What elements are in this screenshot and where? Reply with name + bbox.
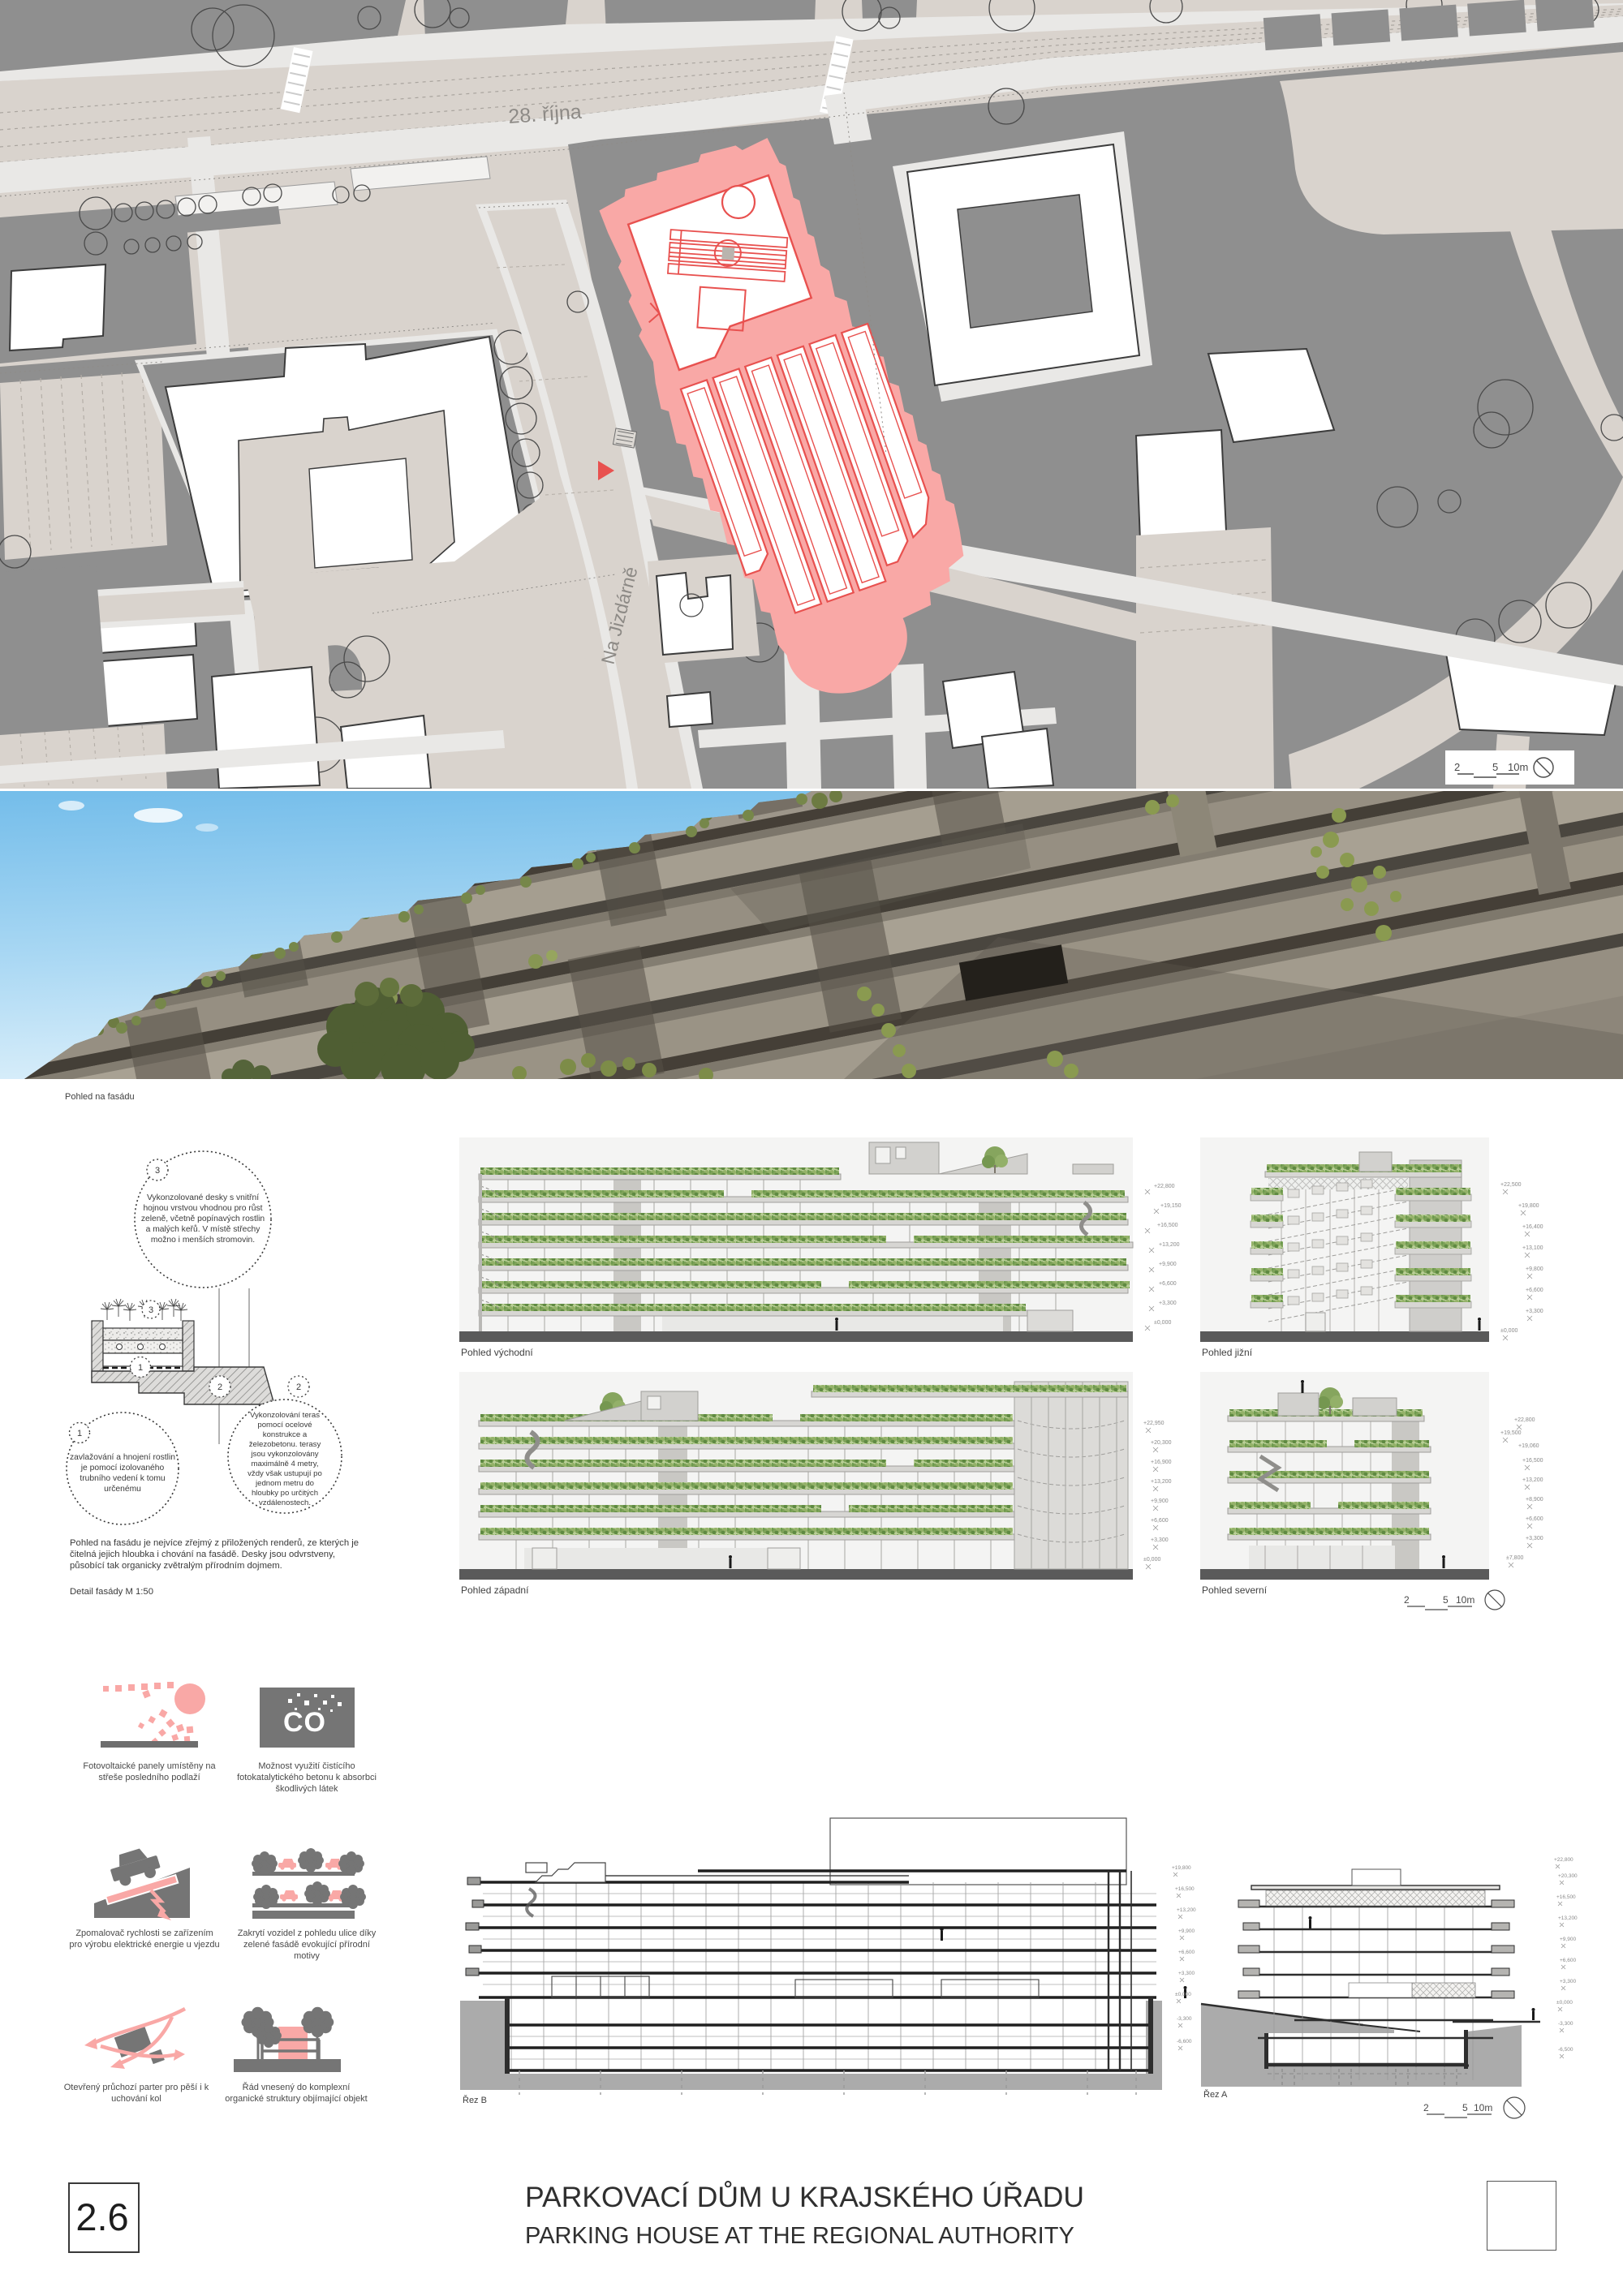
svg-text:+9,800: +9,800 <box>1526 1266 1543 1272</box>
svg-text:+3,300: +3,300 <box>1526 1536 1543 1541</box>
svg-text:Detail fasády M 1:50: Detail fasády M 1:50 <box>70 1587 153 1597</box>
svg-text:+22,500: +22,500 <box>1500 1182 1522 1188</box>
svg-text:+13,100: +13,100 <box>1522 1245 1543 1251</box>
svg-text:5: 5 <box>1492 761 1498 773</box>
svg-text:+20,300: +20,300 <box>1151 1440 1172 1446</box>
svg-text:10m: 10m <box>1508 761 1528 773</box>
svg-text:±0,000: ±0,000 <box>1154 1320 1171 1326</box>
svg-text:Vykonzolované desky s vnitřní: Vykonzolované desky s vnitřní <box>147 1193 259 1202</box>
svg-text:čitelná jejich hloubka i chová: čitelná jejich hloubka i chování na fasá… <box>70 1550 335 1559</box>
svg-text:železobetonu. terasy: železobetonu. terasy <box>249 1440 321 1449</box>
svg-text:škodlivých látek: škodlivých látek <box>275 1784 338 1794</box>
svg-text:+13,200: +13,200 <box>1558 1915 1578 1921</box>
svg-text:střeše posledního podlaží: střeše posledního podlaží <box>98 1773 200 1782</box>
svg-text:2: 2 <box>1404 1594 1410 1606</box>
svg-text:vždy však ustupují po: vždy však ustupují po <box>248 1469 322 1478</box>
svg-text:+19,800: +19,800 <box>1518 1203 1539 1209</box>
svg-text:5: 5 <box>1443 1594 1449 1606</box>
svg-text:-6,500: -6,500 <box>1558 2047 1573 2053</box>
svg-text:1: 1 <box>77 1429 82 1438</box>
svg-text:jsou vykonzolovány: jsou vykonzolovány <box>250 1450 318 1459</box>
svg-text:+6,600: +6,600 <box>1560 1958 1576 1963</box>
svg-text:+19,500: +19,500 <box>1500 1430 1522 1436</box>
svg-text:fotokatalytického betonu k abs: fotokatalytického betonu k absorbci <box>237 1773 377 1782</box>
svg-text:+22,800: +22,800 <box>1514 1417 1535 1423</box>
svg-text:Řád vnesený do komplexní: Řád vnesený do komplexní <box>243 2082 351 2092</box>
svg-text:maximálně 4 metry,: maximálně 4 metry, <box>252 1460 319 1468</box>
svg-text:+19,060: +19,060 <box>1518 1443 1539 1449</box>
svg-text:a malých keřů. V místě střechy: a malých keřů. V místě střechy <box>146 1224 261 1234</box>
svg-text:+9,900: +9,900 <box>1159 1262 1177 1267</box>
svg-text:uchování kol: uchování kol <box>111 2094 161 2104</box>
svg-text:+3,300: +3,300 <box>1151 1537 1169 1543</box>
svg-text:±0,000: ±0,000 <box>1500 1328 1518 1334</box>
svg-text:2: 2 <box>1423 2102 1429 2113</box>
svg-text:zeleně, včetně popínavých rost: zeleně, včetně popínavých rostlin <box>141 1215 265 1223</box>
svg-text:Pohled na fasádu je nejvíce zř: Pohled na fasádu je nejvíce zřejmý z při… <box>70 1538 359 1548</box>
svg-text:10m: 10m <box>1474 2102 1492 2113</box>
svg-text:Vykonzolování teras: Vykonzolování teras <box>250 1411 320 1420</box>
svg-text:konstrukce a: konstrukce a <box>263 1430 308 1439</box>
svg-text:+22,800: +22,800 <box>1554 1857 1573 1863</box>
svg-text:+20,300: +20,300 <box>1558 1873 1578 1879</box>
svg-text:3: 3 <box>155 1166 160 1176</box>
svg-text:-3,300: -3,300 <box>1558 2021 1573 2027</box>
svg-text:+3,300: +3,300 <box>1560 1979 1576 1984</box>
svg-text:zavlažování a hnojení rostlin: zavlažování a hnojení rostlin <box>70 1453 175 1462</box>
svg-text:2: 2 <box>217 1382 222 1392</box>
svg-text:+16,500: +16,500 <box>1556 1894 1576 1900</box>
svg-text:+13,200: +13,200 <box>1151 1479 1172 1485</box>
svg-text:hojnou vrstvou vhodnou pro růs: hojnou vrstvou vhodnou pro růst <box>143 1203 262 1213</box>
svg-text:2: 2 <box>1454 761 1460 773</box>
svg-text:10m: 10m <box>1456 1594 1474 1606</box>
svg-text:pomocí ocelové: pomocí ocelové <box>257 1421 312 1430</box>
svg-text:+6,600: +6,600 <box>1159 1281 1177 1287</box>
svg-text:+16,500: +16,500 <box>1522 1458 1543 1464</box>
svg-text:zelené fasádě evokující přírod: zelené fasádě evokující přírodní <box>243 1940 370 1950</box>
svg-text:+6,600: +6,600 <box>1151 1518 1169 1524</box>
svg-text:Možnost využití čistícího: Možnost využití čistícího <box>258 1761 355 1771</box>
svg-text:organické struktury objímající: organické struktury objímající objekt <box>225 2094 367 2104</box>
svg-text:+16,400: +16,400 <box>1522 1224 1543 1230</box>
svg-text:hloubky po určitých: hloubky po určitých <box>252 1489 318 1498</box>
svg-text:Zakrytí vozidel z pohledu ulic: Zakrytí vozidel z pohledu ulice díky <box>238 1928 377 1938</box>
svg-text:jednom metru do: jednom metru do <box>255 1479 314 1488</box>
svg-text:+16,500: +16,500 <box>1157 1223 1178 1228</box>
svg-text:2: 2 <box>296 1382 301 1392</box>
svg-text:+16,900: +16,900 <box>1151 1460 1172 1465</box>
svg-text:±7,800: ±7,800 <box>1506 1555 1523 1561</box>
svg-text:+9,900: +9,900 <box>1560 1937 1576 1942</box>
svg-text:+3,300: +3,300 <box>1159 1301 1177 1306</box>
svg-text:+22,950: +22,950 <box>1143 1421 1165 1426</box>
svg-text:pro výrobu elektrické energie: pro výrobu elektrické energie u vjezdu <box>69 1940 219 1950</box>
svg-text:+19,150: +19,150 <box>1160 1203 1182 1209</box>
svg-text:působící tak organicky zvětral: působící tak organicky zvětralým přírodn… <box>70 1561 282 1571</box>
svg-text:trubního vedení k tomu: trubního vedení k tomu <box>80 1474 166 1483</box>
svg-text:1: 1 <box>138 1363 143 1373</box>
svg-text:3: 3 <box>149 1305 153 1315</box>
svg-text:+22,800: +22,800 <box>1154 1184 1175 1189</box>
svg-text:Fotovoltaické panely umístěny: Fotovoltaické panely umístěny na <box>83 1761 216 1771</box>
svg-text:+8,900: +8,900 <box>1526 1497 1543 1503</box>
svg-text:Zpomalovač rychlosti se zaříze: Zpomalovač rychlosti se zařízením <box>75 1928 213 1938</box>
svg-text:+6,600: +6,600 <box>1526 1516 1543 1522</box>
svg-text:je pomocí izolovaného: je pomocí izolovaného <box>80 1464 165 1473</box>
svg-text:±0,000: ±0,000 <box>1556 2000 1573 2006</box>
svg-text:možno i menších stromovin.: možno i menších stromovin. <box>151 1236 255 1245</box>
svg-text:+9,900: +9,900 <box>1151 1498 1169 1504</box>
svg-text:vzdálenostech.: vzdálenostech. <box>259 1498 311 1507</box>
svg-text:určenému: určenému <box>104 1485 141 1494</box>
svg-text:+13,200: +13,200 <box>1159 1242 1180 1248</box>
svg-text:+6,600: +6,600 <box>1526 1288 1543 1293</box>
svg-text:+13,200: +13,200 <box>1522 1477 1543 1483</box>
svg-text:5: 5 <box>1462 2102 1468 2113</box>
svg-text:±0,000: ±0,000 <box>1143 1557 1160 1563</box>
svg-text:motivy: motivy <box>294 1951 320 1961</box>
svg-text:+3,300: +3,300 <box>1526 1309 1543 1314</box>
svg-text:CO: CO <box>283 1707 326 1738</box>
svg-text:Otevřený průchozí parter pro p: Otevřený průchozí parter pro pěší i k <box>64 2083 209 2092</box>
